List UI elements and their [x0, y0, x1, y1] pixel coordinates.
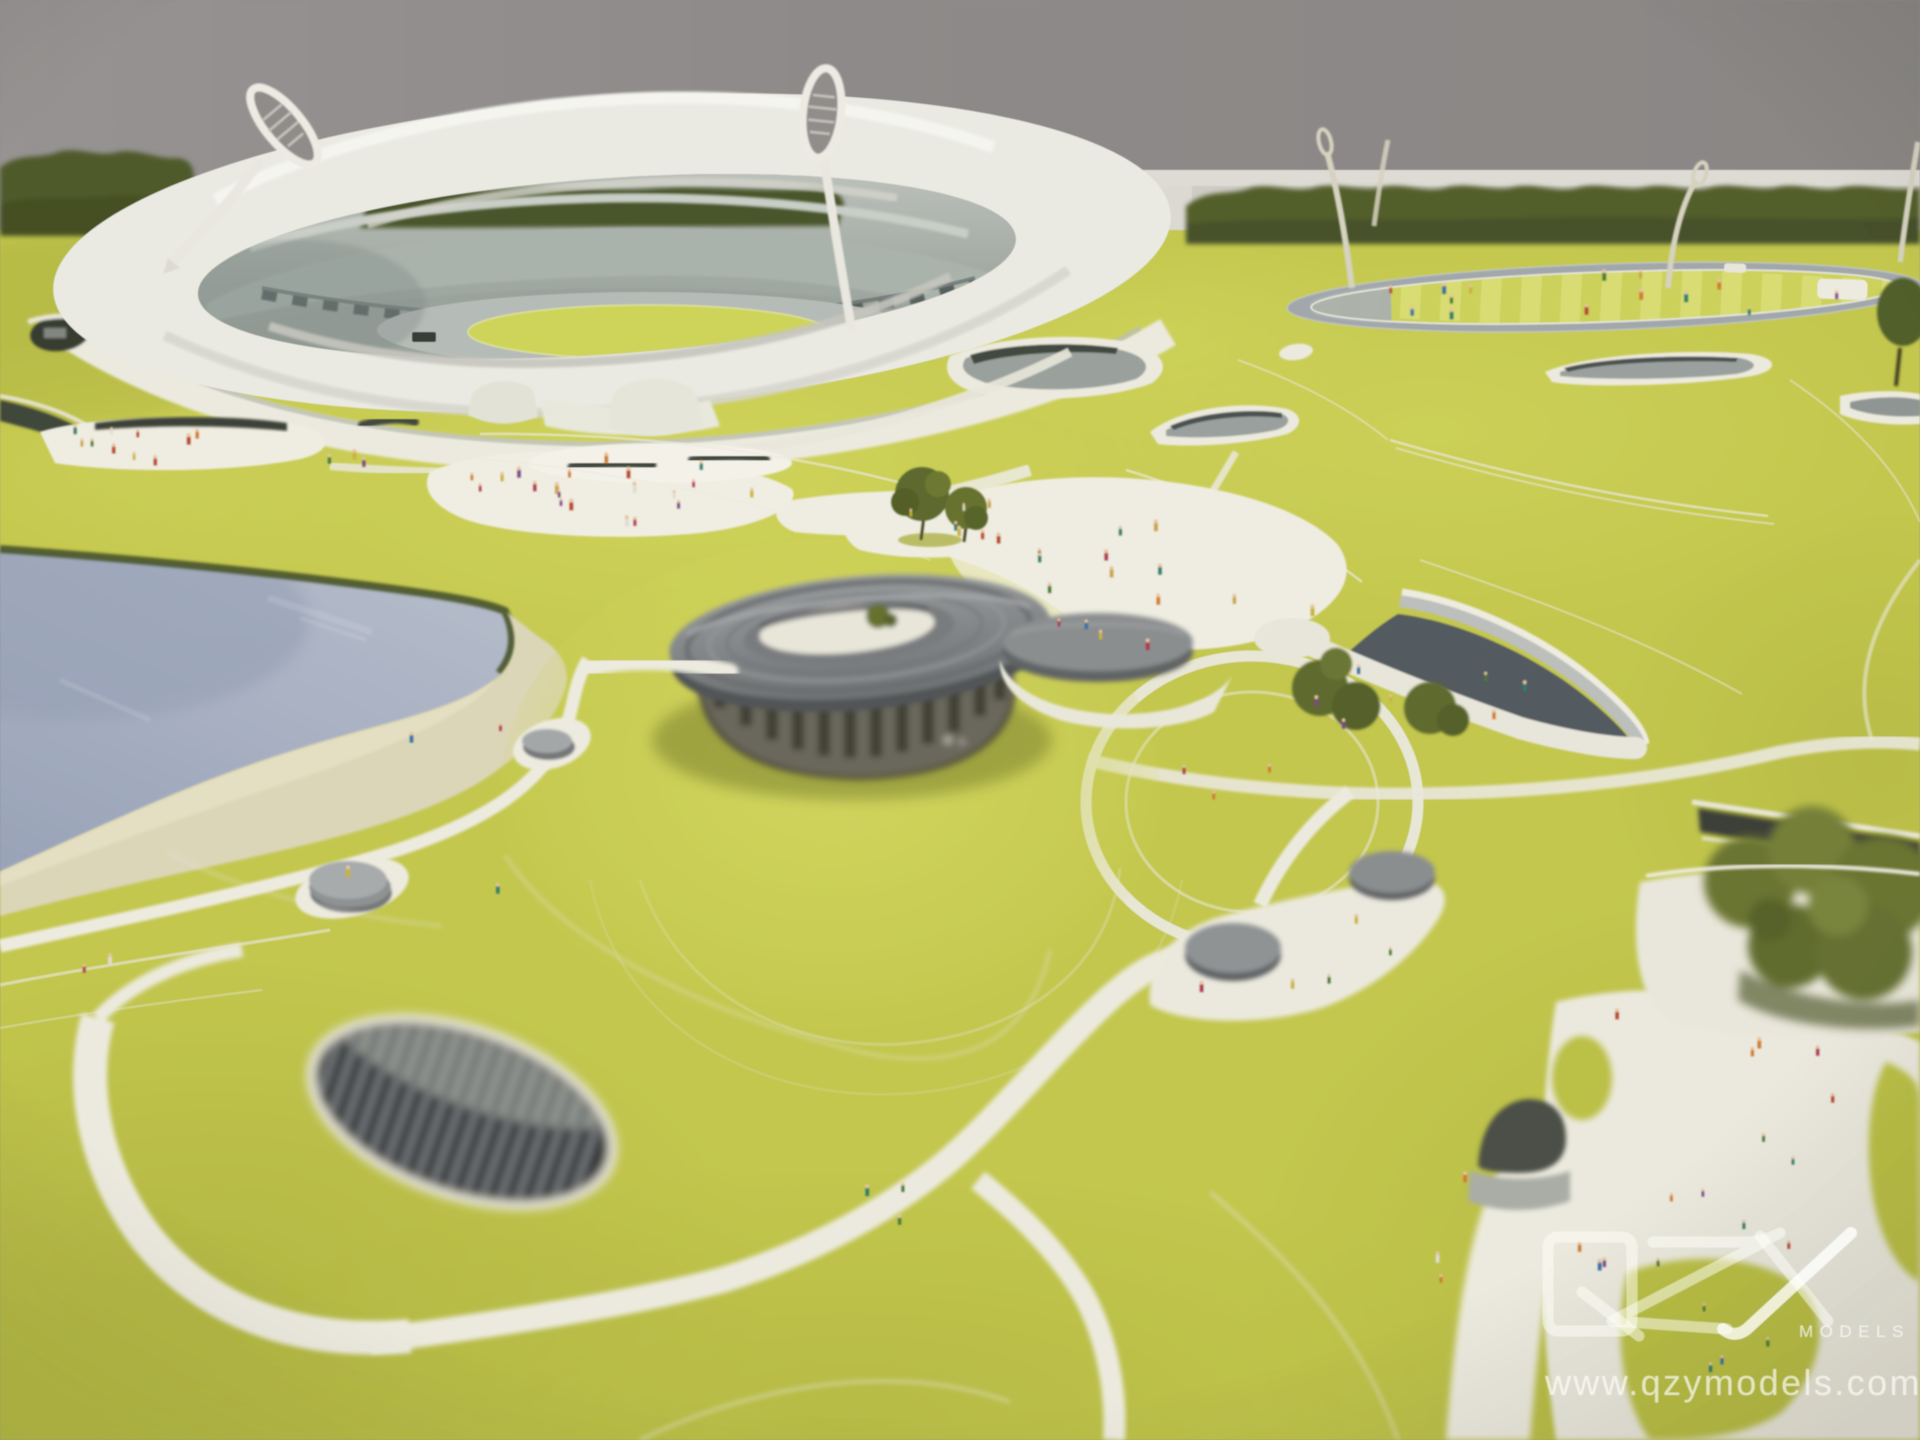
svg-text:www.qzymodels.com: www.qzymodels.com [1544, 1362, 1920, 1403]
svg-text:MODELS: MODELS [1799, 1322, 1910, 1341]
